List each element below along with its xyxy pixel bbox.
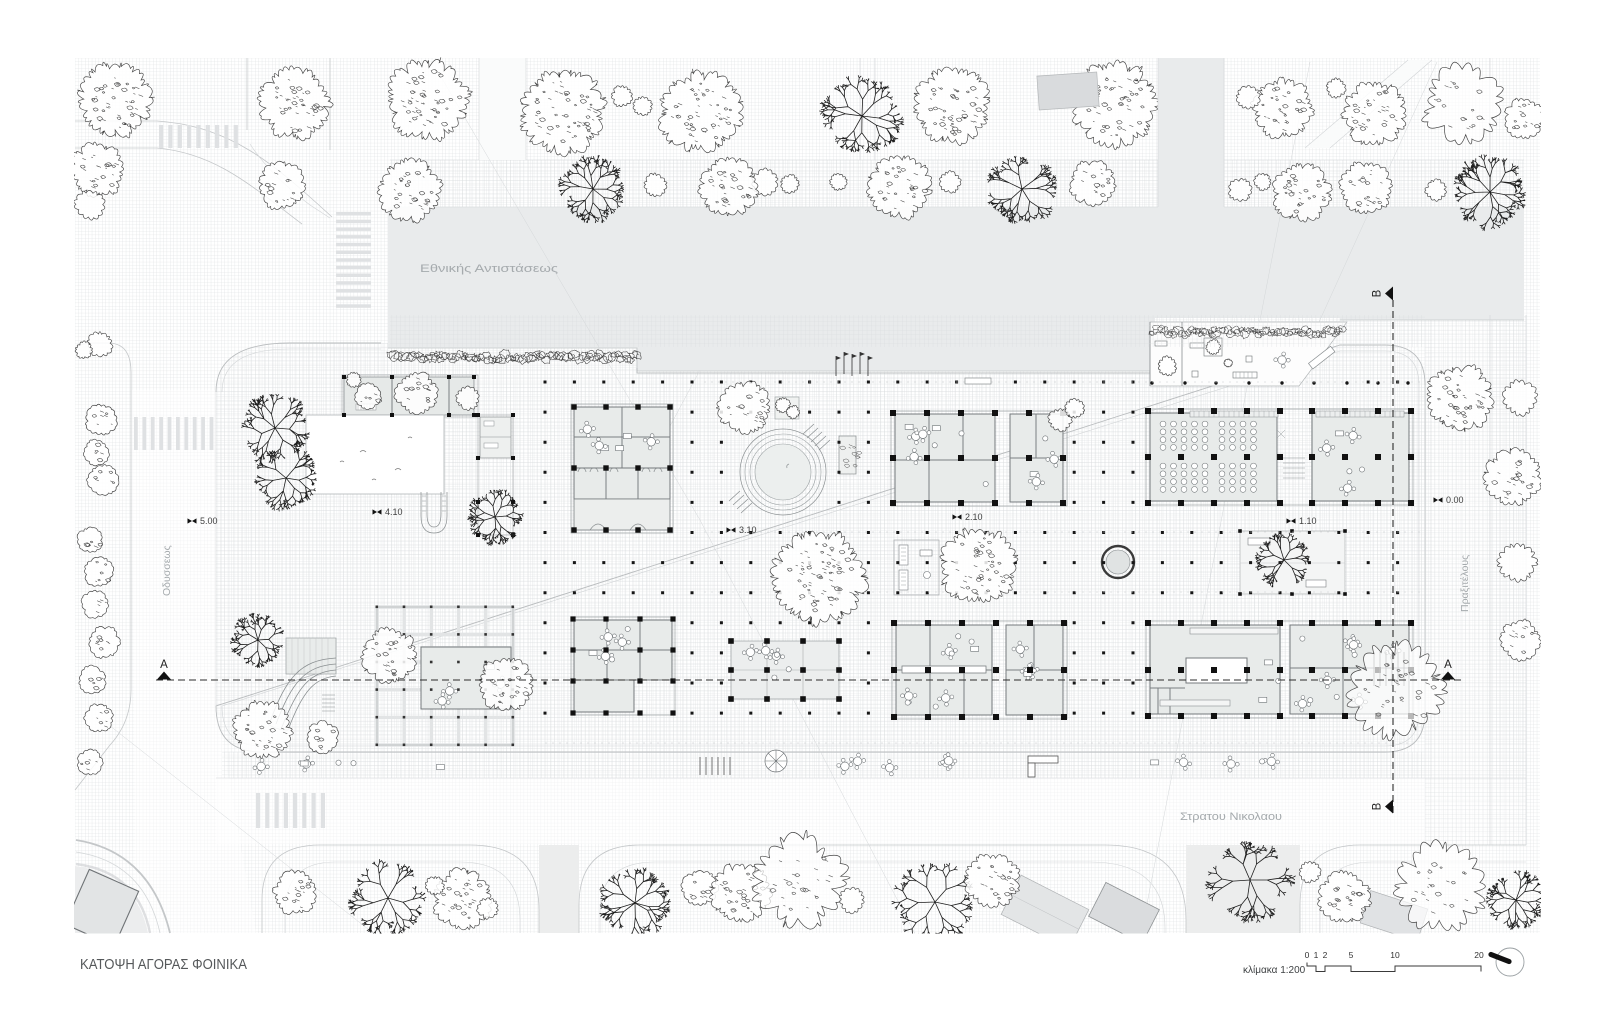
svg-text:4.10: 4.10 [385, 507, 403, 517]
svg-text:2.10: 2.10 [965, 512, 983, 522]
svg-text:A: A [160, 659, 168, 671]
svg-text:Οδυσσεως: Οδυσσεως [161, 545, 173, 596]
svg-text:2: 2 [1323, 950, 1328, 960]
svg-text:10: 10 [1390, 950, 1400, 960]
svg-text:ΚΑΤΟΨΗ ΑΓΟΡΑΣ ΦΟΙΝΙΚΑ: ΚΑΤΟΨΗ ΑΓΟΡΑΣ ΦΟΙΝΙΚΑ [80, 957, 247, 973]
svg-text:Εθνικής Αντιστάσεως: Εθνικής Αντιστάσεως [420, 263, 558, 275]
svg-text:0: 0 [1305, 950, 1310, 960]
svg-text:20: 20 [1474, 950, 1484, 960]
svg-text:κλίμακα 1:200: κλίμακα 1:200 [1243, 964, 1306, 976]
svg-text:A: A [1444, 659, 1452, 671]
svg-text:1.10: 1.10 [1299, 516, 1317, 526]
svg-text:1: 1 [1314, 950, 1319, 960]
svg-text:Στρατου Νικολαου: Στρατου Νικολαου [1180, 811, 1282, 823]
svg-text:B: B [1372, 802, 1384, 810]
svg-text:5: 5 [1349, 950, 1354, 960]
svg-text:5.00: 5.00 [200, 516, 218, 526]
svg-text:B: B [1372, 289, 1384, 297]
svg-text:Πραξιτέλους: Πραξιτέλους [1459, 555, 1471, 612]
svg-text:3.10: 3.10 [739, 525, 757, 535]
svg-text:0.00: 0.00 [1446, 495, 1464, 505]
